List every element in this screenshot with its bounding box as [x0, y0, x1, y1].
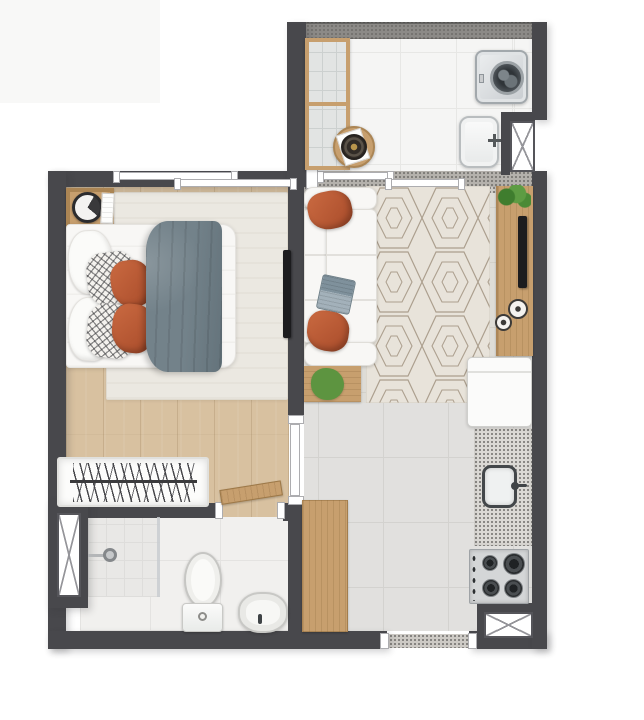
- bottom-wall-left: [48, 631, 387, 649]
- bedroom-window-panel-inner: [175, 179, 296, 187]
- potted-plant: [497, 185, 531, 208]
- bedroom-tv: [283, 250, 291, 338]
- shower-floor: [88, 517, 160, 597]
- burner: [482, 555, 498, 571]
- entry-door-jamb-left: [380, 633, 389, 649]
- right-exterior-wall: [532, 171, 547, 649]
- balcony-sliding-door-panel-a: [318, 172, 393, 180]
- bathroom-door-jamb-right: [277, 502, 285, 519]
- refrigerator: [467, 357, 532, 427]
- toilet-flush-button: [198, 612, 207, 621]
- alarm-clock: [72, 192, 103, 223]
- cooktop-knobs: [471, 553, 477, 601]
- shower-glass-partition: [157, 517, 160, 597]
- wardrobe-rail: [70, 480, 197, 483]
- right-wall-top: [532, 22, 547, 120]
- service-left-wall: [287, 22, 306, 187]
- washbasin: [238, 592, 288, 633]
- living-room-tv: [518, 216, 527, 288]
- balcony-sliding-door-panel-b: [386, 179, 464, 187]
- floor-plan: [0, 0, 644, 720]
- bedroom-door-jamb-top: [288, 415, 304, 424]
- laptop: [316, 274, 357, 315]
- entry-threshold: [389, 634, 468, 648]
- duct-shaft-service: [510, 121, 535, 172]
- adjacent-slab-shadow: [0, 0, 160, 103]
- burner: [503, 553, 525, 575]
- cooktop: [469, 549, 529, 604]
- shower-drain-pipe: [88, 554, 104, 557]
- washer-latch: [479, 74, 484, 83]
- cabinet-shelf-divider: [309, 102, 346, 106]
- toilet-bowl: [184, 552, 222, 608]
- book: [100, 193, 115, 225]
- entry-door-jamb-right: [468, 633, 477, 649]
- sink-faucet-lever: [518, 484, 527, 487]
- decor-vase: [508, 299, 528, 319]
- yellow-flowers: [310, 367, 344, 400]
- washing-machine: [475, 50, 528, 104]
- tub-faucet-cross: [488, 134, 501, 147]
- balcony-parapet-wall: [302, 22, 534, 39]
- serving-tray: [341, 134, 367, 160]
- shower-drain: [103, 548, 117, 562]
- burner: [482, 579, 500, 597]
- refrigerator-door-line: [468, 371, 531, 373]
- kitchen-counter-table: [302, 500, 348, 632]
- duct-shaft-kitchen: [484, 612, 533, 638]
- bedroom-door-leaf: [290, 424, 300, 496]
- duct-shaft-bathroom: [57, 513, 81, 597]
- washer-drum: [490, 61, 524, 95]
- burner: [504, 579, 523, 598]
- basin-faucet: [258, 614, 262, 624]
- decor-vase: [495, 314, 512, 331]
- grey-duvet: [146, 221, 222, 372]
